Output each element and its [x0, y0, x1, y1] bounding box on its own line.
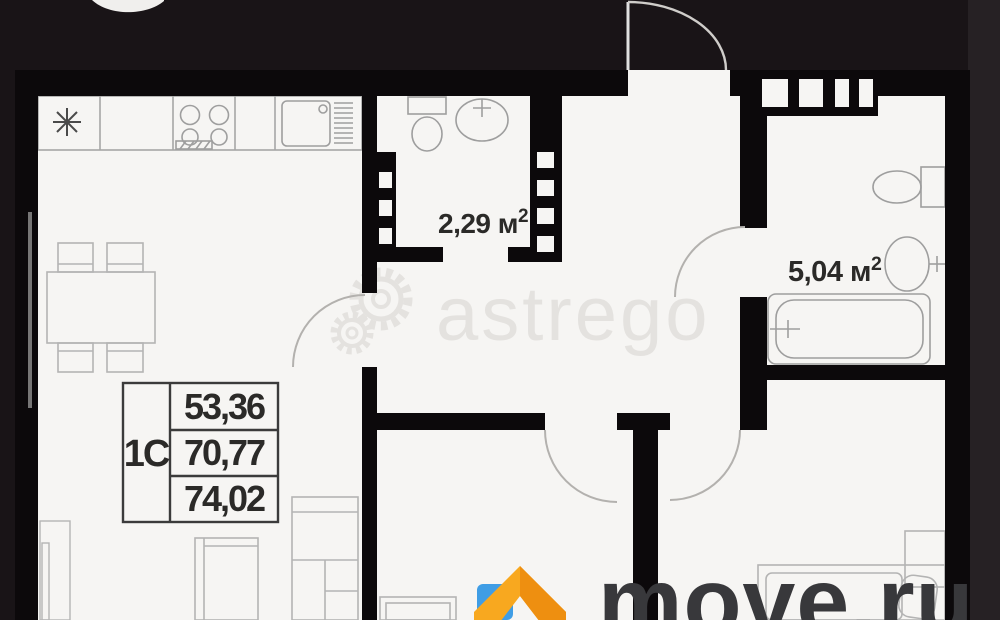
floor-plan-screenshot: astrego: [0, 0, 1000, 620]
wall-outer-top-left: [15, 70, 628, 96]
floor-plan-canvas: astrego: [0, 0, 1000, 620]
small-bathroom-area-label: 2,29 м2: [438, 206, 528, 239]
shaft-hatch: [379, 172, 392, 188]
vent-dash: [762, 79, 788, 107]
unit-type-label: 1C: [124, 433, 170, 475]
shaft-hatch: [379, 228, 392, 244]
vent-dash: [799, 79, 823, 107]
wall-bigbath-bottom: [740, 365, 945, 380]
fridge-asterisk-icon: [53, 108, 81, 136]
wall-bigbath-left-upper: [740, 96, 767, 228]
shaft-hatch: [537, 152, 554, 168]
shaft-hatch: [537, 180, 554, 196]
wall-pillar-cap: [617, 413, 670, 430]
area-row-total: 70,77: [184, 432, 265, 473]
area-row-overall: 74,02: [184, 478, 265, 519]
brand-text: move.ru: [598, 549, 975, 620]
shaft-hatch: [537, 208, 554, 224]
wall-kitchen-bath-upper: [362, 96, 377, 293]
vent-dash: [859, 79, 873, 107]
shaft-hatch: [379, 200, 392, 216]
wall-hall-bottom: [362, 413, 545, 430]
wall-smallbath-bottom-left: [362, 247, 443, 262]
wall-bedroom-jamb: [740, 380, 767, 430]
wall-outer-left: [15, 70, 38, 620]
watermark-text: astrego: [436, 272, 711, 357]
area-row-living: 53,36: [184, 386, 265, 427]
large-bathroom-area-label: 5,04 м2: [788, 253, 882, 288]
wall-kitchen-bath-lower: [362, 367, 377, 620]
shaft-hatch: [537, 236, 554, 252]
wall-outer-right: [945, 70, 970, 620]
window-line: [28, 212, 32, 408]
vent-dash: [835, 79, 849, 107]
